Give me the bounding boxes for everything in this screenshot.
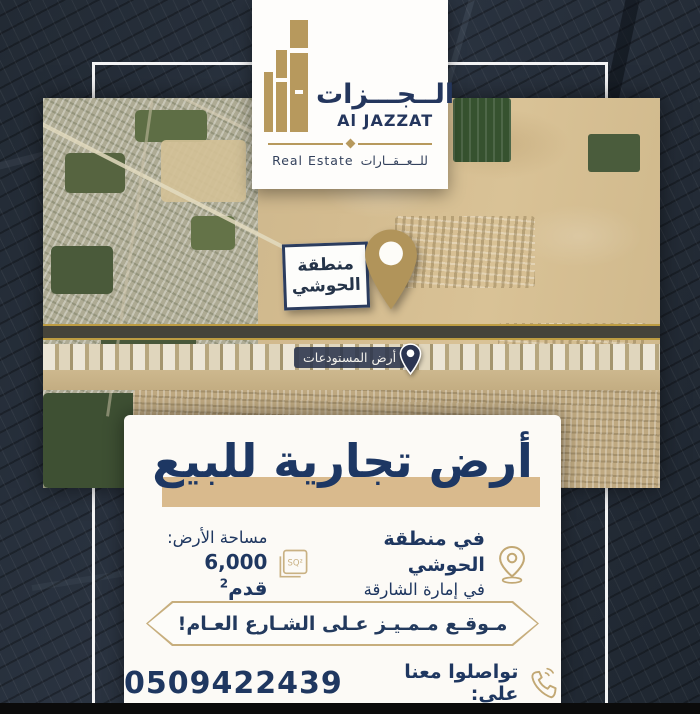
building-logo-icon [264, 18, 310, 132]
road-label: أرض المستودعات [294, 347, 405, 368]
brand-name-latin: Al JAZZAT [316, 111, 454, 130]
location-line1: في منطقة الحوشي [310, 527, 485, 578]
area-label-line2: الحوشي [291, 275, 361, 299]
small-pin-icon [399, 343, 422, 376]
diamond-icon [345, 139, 355, 149]
headline: أرض تجارية للبيع [124, 415, 561, 520]
logo-divider [268, 140, 432, 147]
map-pin-icon [363, 228, 419, 312]
location-line2: في إمارة الشارقة [310, 579, 485, 601]
map-green-compound [588, 134, 640, 172]
feature-banner-text: مـوقـع مـمـيـز عـلى الشـارع العـام! [148, 603, 537, 644]
brand-name-arabic: الــجـــزات [316, 81, 454, 109]
area-label-box: منطقة الحوشي [282, 242, 370, 311]
map-main-street [43, 324, 660, 340]
area-value: 6,000 قدم [204, 550, 267, 600]
contact-label: تواصلوا معنا على: [352, 661, 519, 705]
location-pin-icon [495, 542, 529, 586]
contact-phone-number: 0509422439 [124, 666, 343, 701]
brand-tagline-latin: Real Estate [272, 153, 353, 168]
area-label-line1: منطقة [297, 254, 354, 277]
sq-icon-text: SQ² [288, 558, 303, 568]
brand-logo-card: الــجـــزات Al JAZZAT Real Estate للــعـ… [252, 0, 448, 189]
square-feet-icon: SQ² [277, 547, 309, 581]
feature-banner: مـوقـع مـمـيـز عـلى الشـارع العـام! [146, 601, 539, 646]
bottom-black-bar [0, 703, 700, 714]
area-unit-superscript: 2 [220, 577, 228, 591]
map-service-road [43, 370, 660, 390]
area-detail: SQ² مساحة الأرض: 6,000 قدم2 [156, 527, 310, 601]
brand-tagline-arabic: للــعــقــارات [361, 153, 428, 168]
contact-row: تواصلوا معنا على: 0509422439 [124, 661, 561, 705]
location-detail: في منطقة الحوشي في إمارة الشارقة [310, 527, 529, 601]
advert-card: أرض تجارية للبيع في منطقة الحوشي في إمار… [124, 415, 561, 707]
map-green-patch [51, 246, 113, 294]
phone-icon [527, 664, 561, 702]
area-label: مساحة الأرض: [156, 527, 267, 549]
map-green-compound [453, 98, 511, 162]
